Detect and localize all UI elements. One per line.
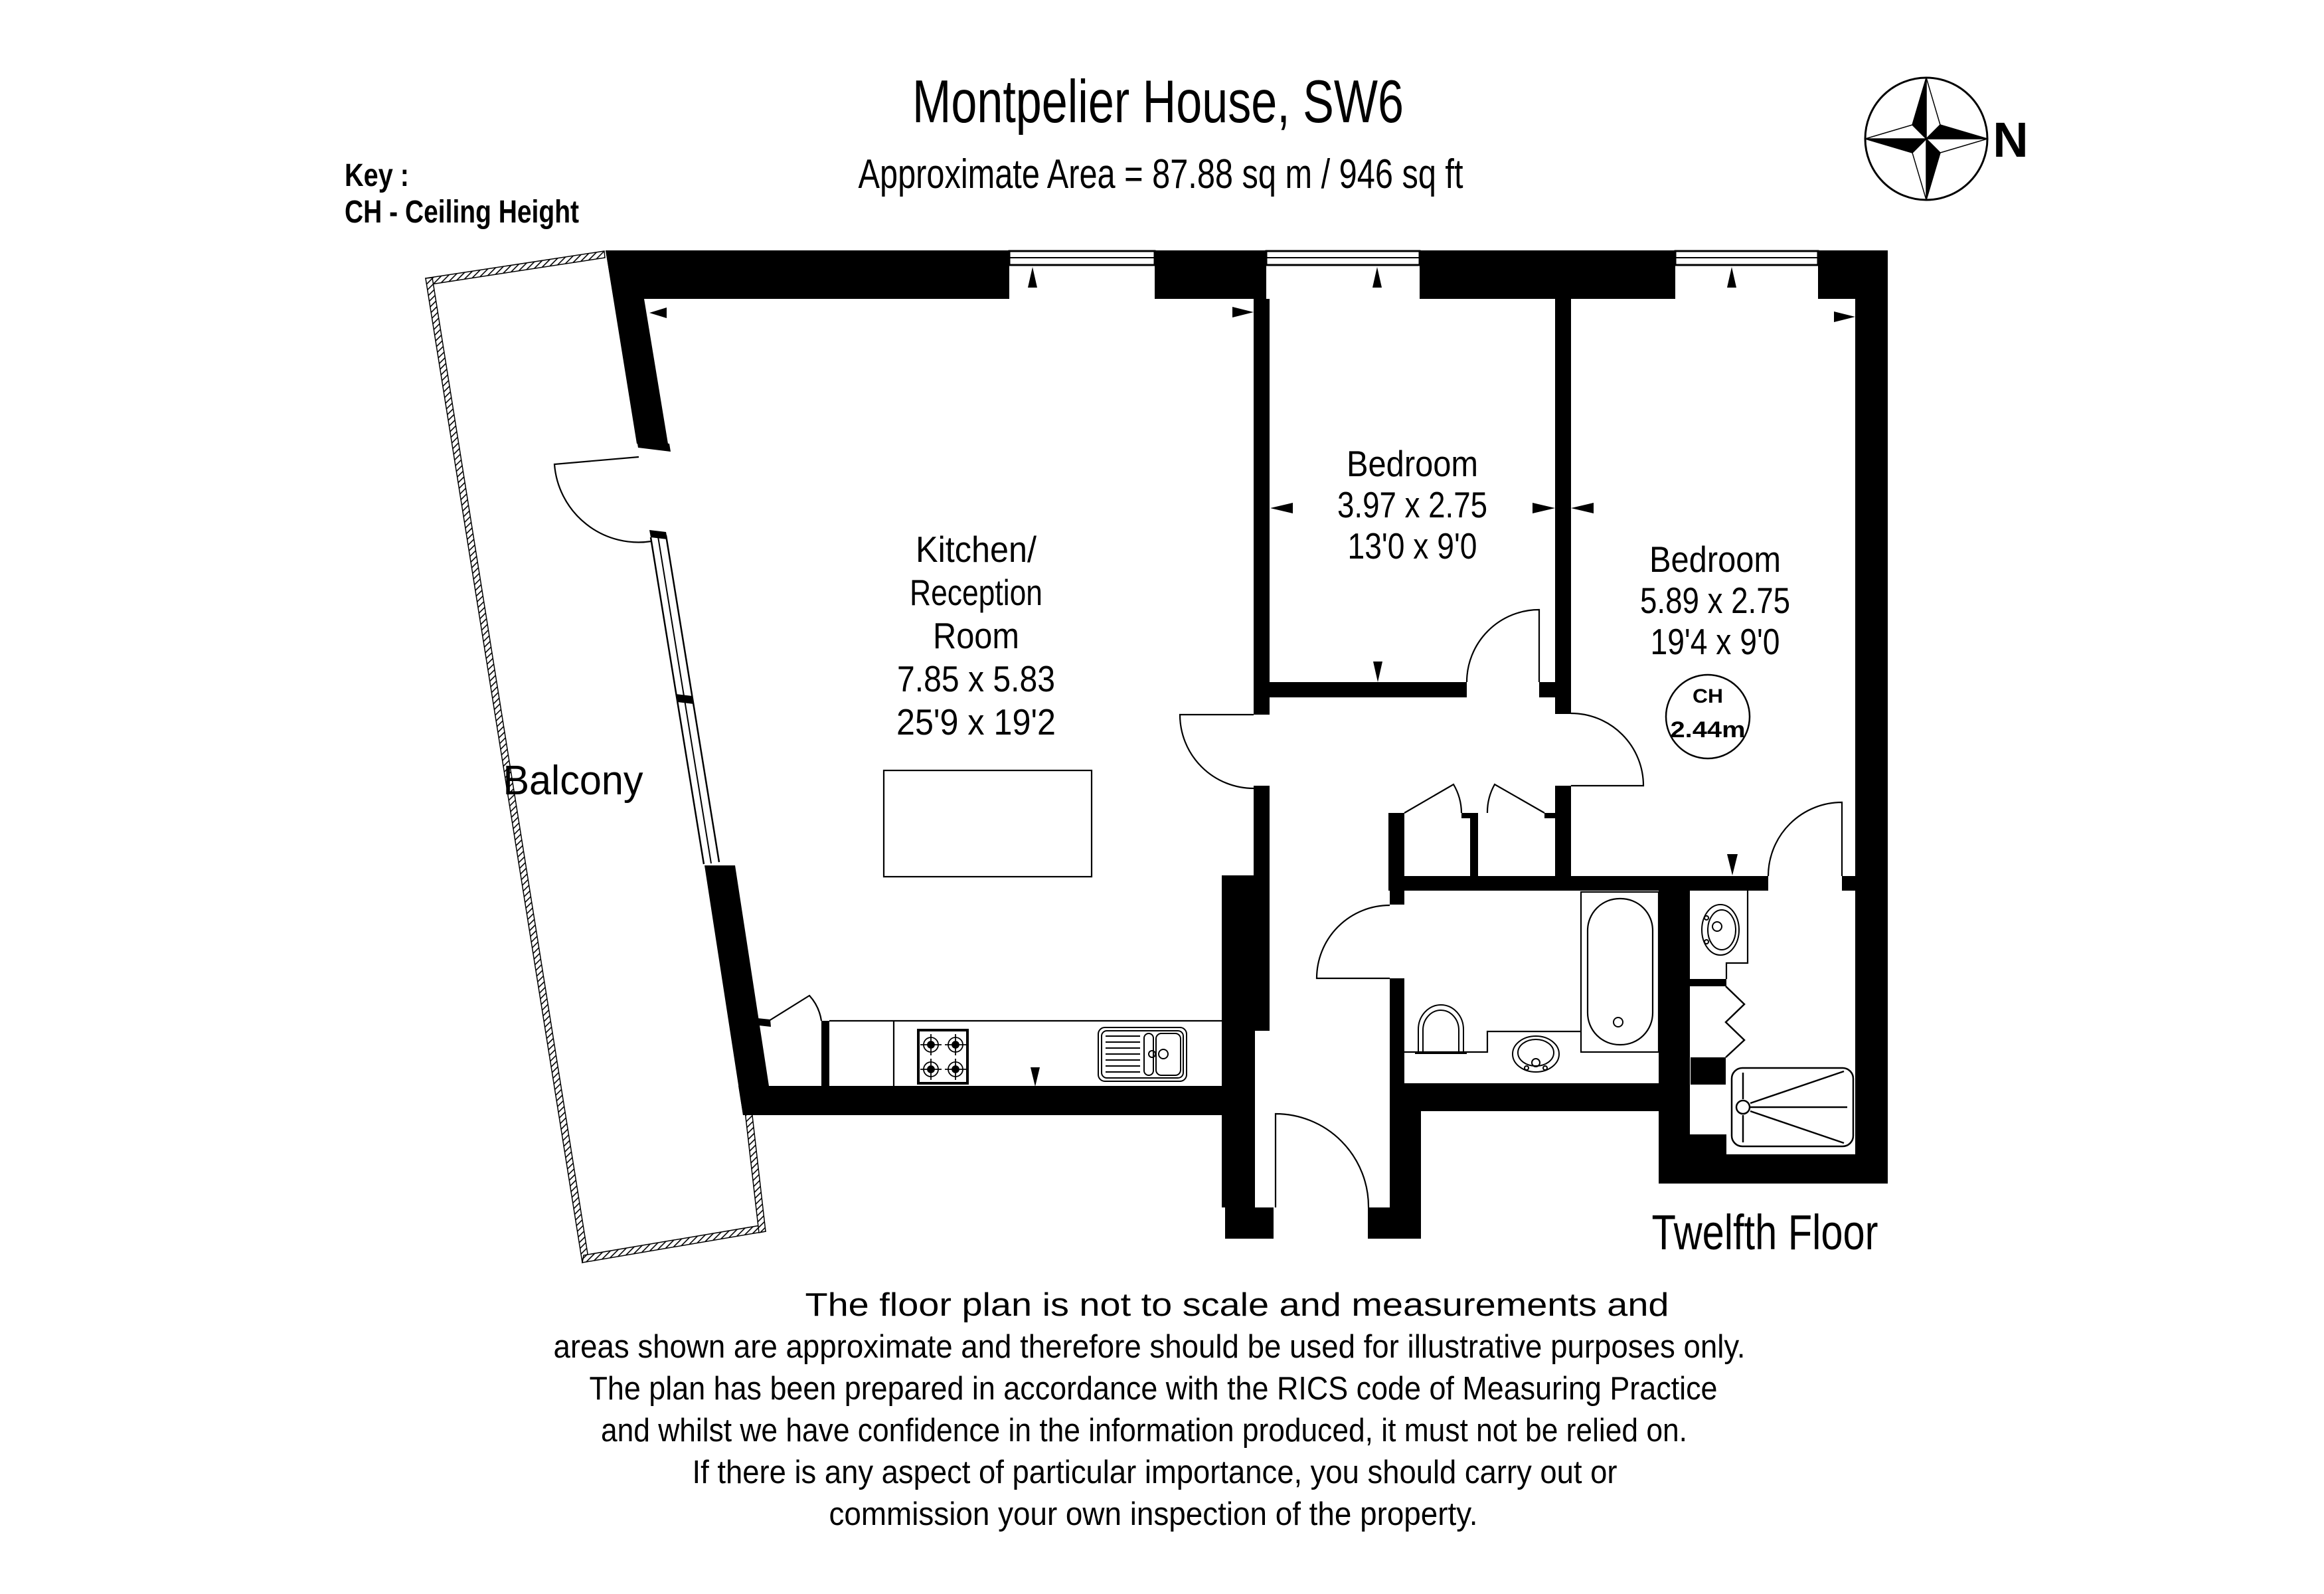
svg-text:The plan has been prepared in: The plan has been prepared in accordance…: [590, 1371, 1718, 1407]
svg-text:Montpelier House, SW6: Montpelier House, SW6: [912, 68, 1404, 135]
svg-text:and whilst we have confidence: and whilst we have confidence in the inf…: [601, 1413, 1687, 1449]
svg-text:Room: Room: [933, 615, 1019, 656]
svg-text:Twelfth Floor: Twelfth Floor: [1652, 1205, 1878, 1260]
svg-text:19'4 x 9'0: 19'4 x 9'0: [1651, 621, 1780, 662]
svg-text:Bedroom: Bedroom: [1347, 443, 1478, 484]
svg-text:5.89 x 2.75: 5.89 x 2.75: [1640, 580, 1790, 621]
svg-text:commission your own inspection: commission your own inspection of the pr…: [829, 1496, 1478, 1532]
svg-text:N: N: [1993, 112, 2028, 167]
svg-text:Key :: Key :: [345, 158, 409, 193]
svg-text:CH - Ceiling Height: CH - Ceiling Height: [345, 195, 579, 230]
svg-text:The floor plan is not to scale: The floor plan is not to scale and measu…: [805, 1287, 1669, 1323]
svg-text:Reception: Reception: [910, 572, 1042, 613]
svg-text:25'9 x 19'2: 25'9 x 19'2: [896, 701, 1056, 743]
svg-text:2.44m: 2.44m: [1671, 717, 1746, 743]
svg-text:Approximate Area = 87.88 sq m: Approximate Area = 87.88 sq m / 946 sq f…: [859, 151, 1463, 197]
svg-text:If there is any aspect of part: If there is any aspect of particular imp…: [693, 1455, 1618, 1490]
svg-text:3.97 x 2.75: 3.97 x 2.75: [1337, 484, 1487, 525]
svg-text:CH: CH: [1693, 685, 1723, 707]
svg-text:13'0 x 9'0: 13'0 x 9'0: [1348, 525, 1477, 567]
svg-text:Kitchen/: Kitchen/: [916, 529, 1037, 570]
svg-text:Balcony: Balcony: [503, 758, 643, 804]
svg-text:7.85 x 5.83: 7.85 x 5.83: [897, 658, 1055, 699]
svg-text:Bedroom: Bedroom: [1649, 539, 1781, 580]
svg-text:areas shown are approximate an: areas shown are approximate and therefor…: [554, 1329, 1746, 1365]
